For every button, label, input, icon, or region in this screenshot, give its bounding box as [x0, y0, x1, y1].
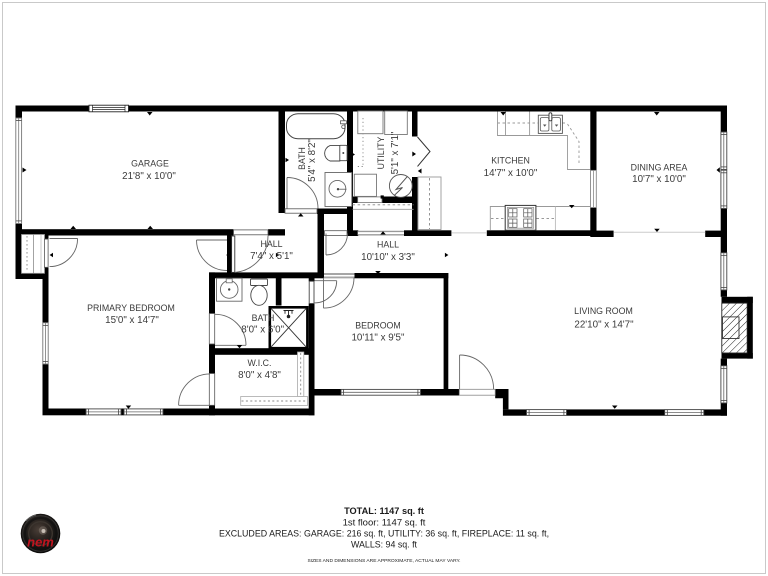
svg-text:nem: nem [27, 535, 54, 550]
svg-text:HALL: HALL [260, 239, 282, 249]
svg-text:WALLS: 94 sq. ft: WALLS: 94 sq. ft [351, 539, 418, 549]
svg-text:1st floor: 1147 sq. ft: 1st floor: 1147 sq. ft [343, 517, 426, 528]
svg-text:TOTAL: 1147 sq. ft: TOTAL: 1147 sq. ft [344, 506, 424, 516]
svg-text:PRIMARY BEDROOM: PRIMARY BEDROOM [87, 303, 175, 313]
svg-text:10'10" x 3'3": 10'10" x 3'3" [361, 252, 415, 263]
svg-text:8'0" x 6'0": 8'0" x 6'0" [241, 325, 284, 336]
svg-text:22'10" x 14'7": 22'10" x 14'7" [574, 320, 634, 331]
svg-text:8'0" x 4'8": 8'0" x 4'8" [238, 370, 281, 381]
svg-text:SIZES AND DIMENSIONS ARE APPRO: SIZES AND DIMENSIONS ARE APPROXIMATE, AC… [307, 558, 460, 564]
svg-text:BATH: BATH [297, 147, 307, 170]
svg-text:GARAGE: GARAGE [131, 159, 169, 169]
svg-text:10'7" x 10'0": 10'7" x 10'0" [632, 174, 686, 185]
svg-text:21'8" x 10'0": 21'8" x 10'0" [122, 171, 176, 182]
svg-text:BATH: BATH [252, 313, 275, 323]
svg-text:KITCHEN: KITCHEN [491, 156, 530, 166]
svg-text:15'0" x 14'7": 15'0" x 14'7" [105, 315, 159, 326]
svg-text:LIVING ROOM: LIVING ROOM [574, 306, 633, 316]
svg-text:W.I.C.: W.I.C. [248, 358, 272, 368]
svg-text:10'11" x 9'5": 10'11" x 9'5" [351, 333, 405, 344]
svg-text:DINING AREA: DINING AREA [631, 163, 688, 173]
svg-text:7'4" x 5'1": 7'4" x 5'1" [250, 251, 293, 262]
svg-text:14'7" x 10'0": 14'7" x 10'0" [484, 168, 538, 179]
svg-text:EXCLUDED AREAS: GARAGE: 216 sq: EXCLUDED AREAS: GARAGE: 216 sq. ft, UTIL… [219, 529, 549, 539]
svg-text:UTILITY: UTILITY [376, 136, 386, 169]
svg-text:BEDROOM: BEDROOM [355, 321, 400, 331]
svg-text:5'1" x 7'1": 5'1" x 7'1" [390, 131, 401, 174]
svg-text:HALL: HALL [377, 240, 399, 250]
svg-text:5'4" x 8'2": 5'4" x 8'2" [307, 139, 318, 182]
